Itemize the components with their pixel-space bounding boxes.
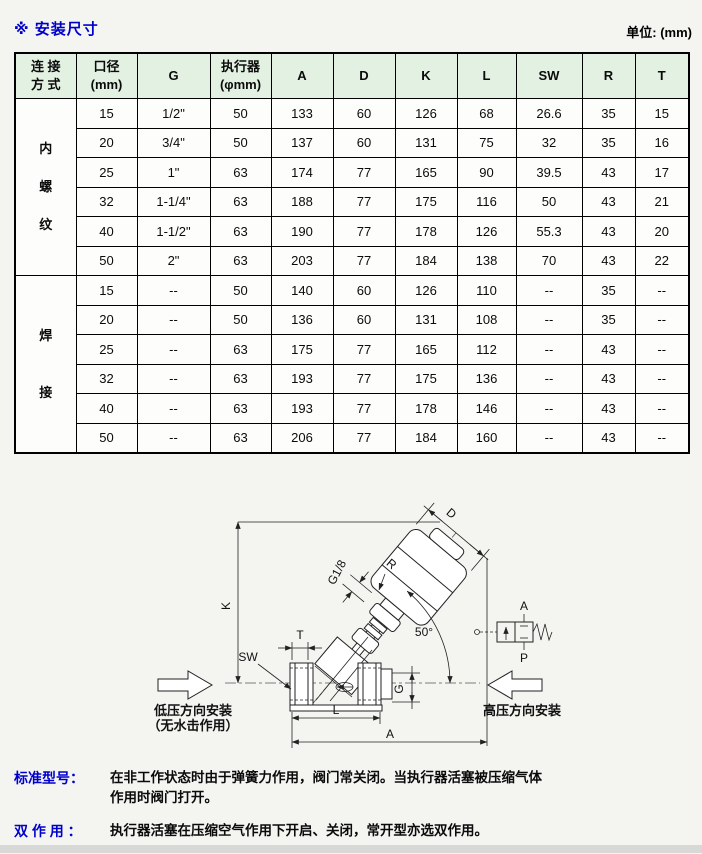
table-cell: 63 [210, 394, 271, 424]
table-cell: 108 [457, 305, 516, 335]
connection-type-label: 内 螺 纹 [15, 99, 76, 276]
sw-dimension-label: SW [238, 650, 258, 664]
table-cell: 75 [457, 128, 516, 158]
table-cell: 20 [76, 305, 137, 335]
table-row: 50--6320677184160--43-- [15, 423, 689, 453]
table-cell: -- [635, 364, 689, 394]
table-cell: 1/2" [137, 99, 210, 129]
d-dimension-label: D [444, 505, 460, 522]
table-cell: 40 [76, 217, 137, 247]
column-header: K [395, 53, 457, 99]
left-port [290, 663, 313, 705]
table-cell: 77 [333, 423, 395, 453]
table-cell: 35 [582, 276, 635, 306]
table-cell: 35 [582, 99, 635, 129]
table-cell: 175 [395, 187, 457, 217]
table-cell: -- [137, 394, 210, 424]
table-cell: 77 [333, 364, 395, 394]
table-cell: 63 [210, 217, 271, 247]
pneumatic-box-right [515, 622, 533, 642]
bottom-bar [0, 845, 702, 853]
table-cell: 184 [395, 246, 457, 276]
table-cell: -- [137, 335, 210, 365]
column-header: L [457, 53, 516, 99]
table-cell: -- [137, 276, 210, 306]
port-a-label: A [520, 599, 528, 613]
table-cell: 63 [210, 423, 271, 453]
table-cell: 140 [271, 276, 333, 306]
table-cell: 160 [457, 423, 516, 453]
table-cell: -- [635, 305, 689, 335]
table-cell: 136 [271, 305, 333, 335]
table-cell: 35 [582, 128, 635, 158]
table-cell: 25 [76, 335, 137, 365]
table-cell: 40 [76, 394, 137, 424]
table-cell: 60 [333, 305, 395, 335]
table-cell: 63 [210, 187, 271, 217]
table-cell: 175 [271, 335, 333, 365]
connection-type-label: 焊 接 [15, 276, 76, 453]
table-cell: 77 [333, 394, 395, 424]
table-cell: 43 [582, 158, 635, 188]
table-cell: 146 [457, 394, 516, 424]
table-cell: -- [137, 364, 210, 394]
table-cell: 206 [271, 423, 333, 453]
table-cell: 43 [582, 187, 635, 217]
dimensions-table: 连 接 方 式口径 (mm)G执行器 (φmm)ADKLSWRT 内 螺 纹15… [14, 52, 690, 454]
column-header: G [137, 53, 210, 99]
table-row: 40--6319377178146--43-- [15, 394, 689, 424]
table-cell: 1-1/2" [137, 217, 210, 247]
table-cell: 133 [271, 99, 333, 129]
table-cell: 116 [457, 187, 516, 217]
low-pressure-arrow [158, 671, 212, 699]
table-cell: -- [635, 335, 689, 365]
table-cell: 77 [333, 158, 395, 188]
spring-icon [533, 624, 552, 640]
column-header: 口径 (mm) [76, 53, 137, 99]
a-dimension-label: A [386, 727, 394, 741]
table-cell: 1" [137, 158, 210, 188]
table-cell: 22 [635, 246, 689, 276]
pilot-source-icon [475, 630, 480, 635]
note-row: 标准型号： 在非工作状态时由于弹簧力作用，阀门常关闭。当执行器活塞被压缩气体 作… [14, 768, 690, 808]
low-pressure-caption-line1: 低压方向安装 [153, 703, 232, 718]
table-cell: 126 [395, 99, 457, 129]
column-header: T [635, 53, 689, 99]
table-row: 焊 接15--5014060126110--35-- [15, 276, 689, 306]
table-cell: 26.6 [516, 99, 582, 129]
table-cell: 43 [582, 364, 635, 394]
table-cell: 63 [210, 335, 271, 365]
table-cell: 178 [395, 217, 457, 247]
g18-arrow [360, 572, 369, 583]
table-cell: 50 [76, 423, 137, 453]
table-cell: -- [635, 423, 689, 453]
note-text: 在非工作状态时由于弹簧力作用，阀门常关闭。当执行器活塞被压缩气体 作用时阀门打开… [110, 768, 542, 808]
table-row: 32--6319377175136--43-- [15, 364, 689, 394]
table-cell: 165 [395, 335, 457, 365]
pneumatic-symbol: A P [475, 599, 553, 665]
k-dimension-label: K [219, 602, 233, 610]
column-header: 连 接 方 式 [15, 53, 76, 99]
table-cell: 50 [210, 305, 271, 335]
table-cell: 136 [457, 364, 516, 394]
note-row: 双 作 用 ： 执行器活塞在压缩空气作用下开启、关闭，常开型亦选双作用。 [14, 821, 690, 841]
table-cell: 43 [582, 335, 635, 365]
table-cell: 32 [76, 364, 137, 394]
table-cell: 43 [582, 217, 635, 247]
table-cell: -- [516, 423, 582, 453]
table-cell: 90 [457, 158, 516, 188]
table-cell: -- [137, 423, 210, 453]
table-cell: 55.3 [516, 217, 582, 247]
right-port [358, 663, 381, 705]
sw-leader-arrow [258, 664, 291, 689]
table-cell: 20 [635, 217, 689, 247]
table-cell: 63 [210, 158, 271, 188]
g18-port-label: G1/8 [325, 557, 350, 587]
table-cell: 77 [333, 335, 395, 365]
unit-label: 单位: (mm) [626, 22, 692, 41]
pipe-stub [381, 669, 392, 699]
table-cell: 60 [333, 128, 395, 158]
column-header: A [271, 53, 333, 99]
table-cell: 15 [76, 276, 137, 306]
table-row: 内 螺 纹151/2"50133601266826.63515 [15, 99, 689, 129]
table-cell: 17 [635, 158, 689, 188]
table-cell: -- [516, 335, 582, 365]
table-cell: 32 [76, 187, 137, 217]
table-cell: 203 [271, 246, 333, 276]
table-cell: 43 [582, 246, 635, 276]
table-row: 251"63174771659039.54317 [15, 158, 689, 188]
l-dimension-label: L [333, 703, 340, 717]
table-cell: 15 [635, 99, 689, 129]
table-cell: 77 [333, 187, 395, 217]
table-cell: 175 [395, 364, 457, 394]
table-cell: 63 [210, 246, 271, 276]
column-header: 执行器 (φmm) [210, 53, 271, 99]
table-cell: 50 [76, 246, 137, 276]
table-cell: 184 [395, 423, 457, 453]
table-cell: -- [516, 276, 582, 306]
table-cell: 138 [457, 246, 516, 276]
table-cell: 60 [333, 99, 395, 129]
angle-label: 50° [415, 625, 433, 639]
table-cell: 126 [457, 217, 516, 247]
table-cell: 50 [210, 128, 271, 158]
table-cell: 50 [210, 276, 271, 306]
table-cell: 60 [333, 276, 395, 306]
table-cell: 20 [76, 128, 137, 158]
table-cell: 193 [271, 364, 333, 394]
g18-arrow [343, 592, 352, 603]
table-cell: 137 [271, 128, 333, 158]
table-header-row: 连 接 方 式口径 (mm)G执行器 (φmm)ADKLSWRT [15, 53, 689, 99]
table-row: 321-1/4"6318877175116504321 [15, 187, 689, 217]
table-cell: 3/4" [137, 128, 210, 158]
table-row: 401-1/2"631907717812655.34320 [15, 217, 689, 247]
note-text: 执行器活塞在压缩空气作用下开启、关闭，常开型亦选双作用。 [110, 821, 488, 841]
table-cell: 77 [333, 246, 395, 276]
table-cell: 21 [635, 187, 689, 217]
table-cell: 178 [395, 394, 457, 424]
valve-dimension-drawing: K D G1/8 R 50° [140, 470, 700, 760]
table-cell: 131 [395, 128, 457, 158]
page-title: ※ 安装尺寸 [14, 18, 99, 39]
notes-section: 标准型号： 在非工作状态时由于弹簧力作用，阀门常关闭。当执行器活塞被压缩气体 作… [14, 768, 690, 854]
table-cell: -- [516, 394, 582, 424]
table-cell: 25 [76, 158, 137, 188]
table-cell: 188 [271, 187, 333, 217]
table-cell: 77 [333, 217, 395, 247]
table-cell: 193 [271, 394, 333, 424]
note-label: 标准型号： [14, 768, 110, 788]
high-pressure-caption: 高压方向安装 [483, 703, 561, 718]
column-header: SW [516, 53, 582, 99]
table-cell: 43 [582, 394, 635, 424]
table-cell: 110 [457, 276, 516, 306]
table-cell: 126 [395, 276, 457, 306]
note-label: 双 作 用 ： [14, 821, 110, 841]
table-cell: 68 [457, 99, 516, 129]
column-header: R [582, 53, 635, 99]
table-row: 502"6320377184138704322 [15, 246, 689, 276]
table-cell: -- [635, 394, 689, 424]
low-pressure-caption-line2: （无水击作用） [147, 718, 238, 733]
d-dimension-arrow [470, 544, 484, 556]
table-row: 25--6317577165112--43-- [15, 335, 689, 365]
t-dimension-label: T [296, 628, 304, 642]
table-cell: 50 [516, 187, 582, 217]
table-cell: -- [516, 364, 582, 394]
table-cell: 112 [457, 335, 516, 365]
column-header: D [333, 53, 395, 99]
table-cell: 70 [516, 246, 582, 276]
table-cell: -- [137, 305, 210, 335]
table-row: 203/4"501376013175323516 [15, 128, 689, 158]
table-cell: 15 [76, 99, 137, 129]
d-extension-line [416, 503, 434, 524]
d-dimension-arrow [428, 510, 442, 522]
port-p-label: P [520, 651, 528, 665]
table-cell: -- [635, 276, 689, 306]
table-cell: 131 [395, 305, 457, 335]
table-cell: 32 [516, 128, 582, 158]
g-dimension-label: G [392, 684, 406, 693]
table-cell: 50 [210, 99, 271, 129]
table-cell: 63 [210, 364, 271, 394]
table-cell: 16 [635, 128, 689, 158]
table-cell: 1-1/4" [137, 187, 210, 217]
table-cell: 174 [271, 158, 333, 188]
table-cell: -- [516, 305, 582, 335]
g18-tick [350, 575, 371, 593]
table-cell: 35 [582, 305, 635, 335]
table-cell: 39.5 [516, 158, 582, 188]
high-pressure-arrow [488, 671, 542, 699]
table-cell: 2" [137, 246, 210, 276]
table-cell: 190 [271, 217, 333, 247]
table-cell: 165 [395, 158, 457, 188]
table-row: 20--5013660131108--35-- [15, 305, 689, 335]
table-cell: 43 [582, 423, 635, 453]
